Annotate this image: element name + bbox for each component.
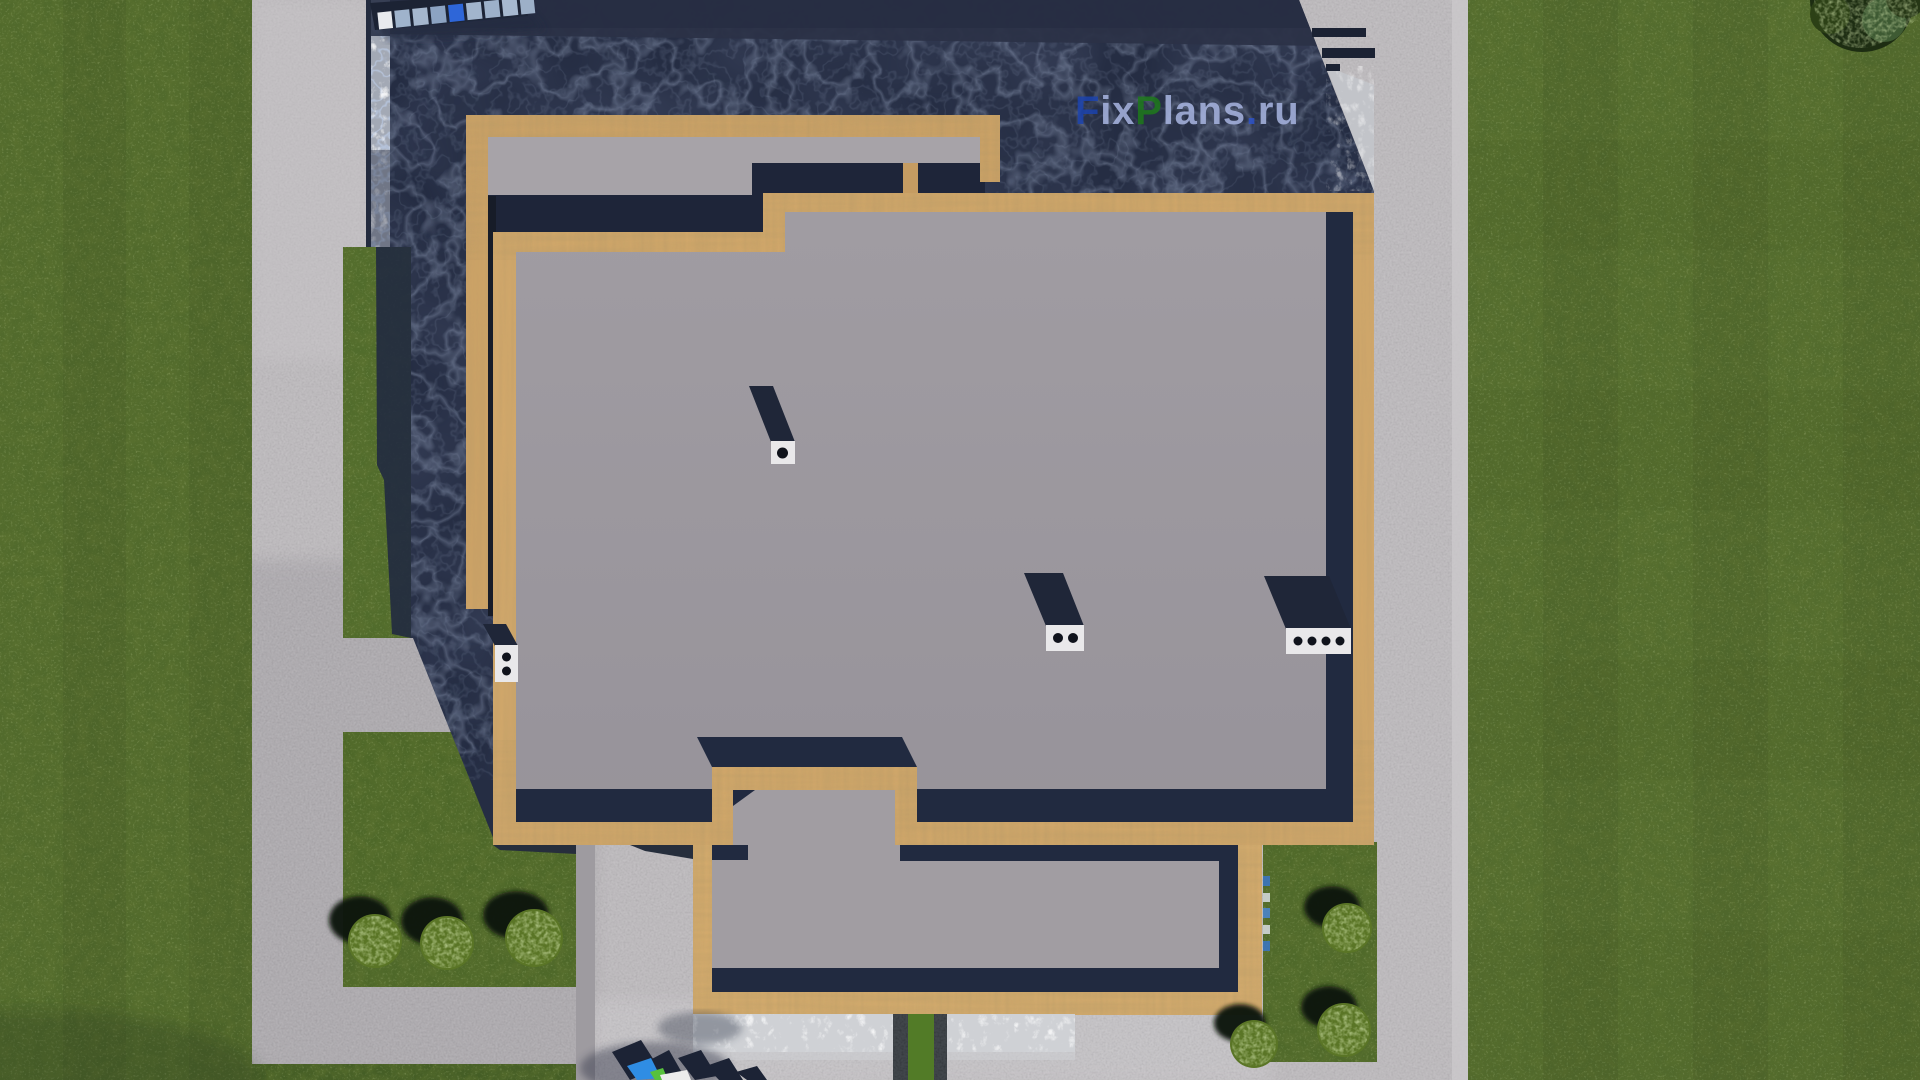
svg-text:FixPlans.ru: FixPlans.ru bbox=[1075, 89, 1299, 133]
